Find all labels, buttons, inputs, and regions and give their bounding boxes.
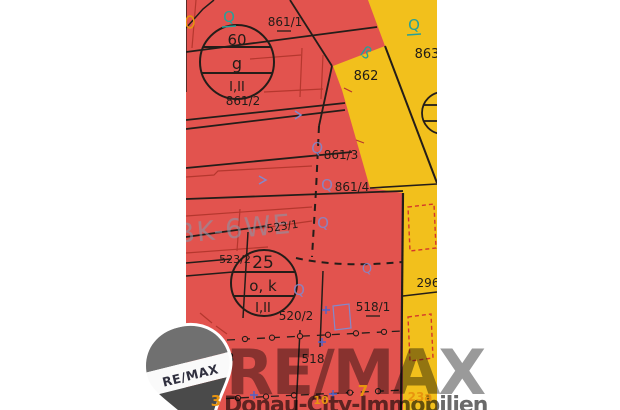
q-symbol-icon: Q [317,214,329,232]
bauklasse-1-2b: I,II [255,301,271,316]
parcel-label-861-3: 861/3 [324,148,359,162]
q-symbol-icon: Q [321,176,333,194]
parcel-label-863: 863 [415,47,440,62]
density-value-60: 60 [227,31,246,49]
parcel-label-296: 296 [417,276,440,290]
house-number-7: 7 [358,382,368,400]
zoning-map: BK-6WE 861/1 861/2 861/3 861/4 862 863 5… [0,0,620,410]
bauweise-o-k: o, k [249,277,277,295]
parcel-label-861-4: 861/4 [335,180,370,194]
parcel-label-861-1: 861/1 [268,15,303,29]
q-symbol-icon: Q [293,281,305,299]
parcel-label-862: 862 [354,69,379,84]
house-number-23a: 23a [408,390,433,404]
zoning-map-screenshot: BK-6WE 861/1 861/2 861/3 861/4 862 863 5… [0,0,620,410]
watermark-subtitle: Donau-City-Immobilien [224,393,487,410]
house-number-10: 10 [313,394,329,407]
density-value-25: 25 [252,253,274,273]
house-number-3: 3 [211,392,221,410]
parcel-label-523-2: 523/2 [219,253,251,266]
parcel-label-518-1: 518/1 [356,300,391,314]
q-symbol-icon: Q [408,16,420,34]
q-underline [222,26,236,27]
bauklasse-1-2: I,II [229,80,245,95]
parcel-label-861-2: 861/2 [226,94,261,108]
bauweise-g: g [232,54,242,73]
q-symbol-icon: Q [223,8,235,26]
q-underline [407,34,421,35]
q-symbol-icon: Q [362,262,372,277]
parcel-label-520-2: 520/2 [279,309,314,323]
